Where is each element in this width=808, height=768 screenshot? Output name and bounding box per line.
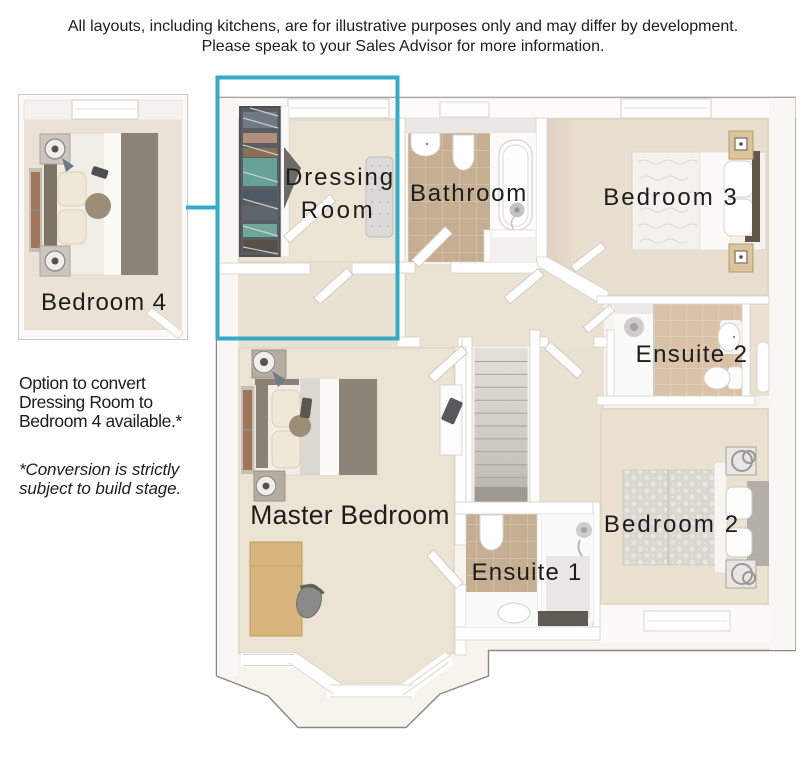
svg-text:Ensuite 2: Ensuite 2 xyxy=(636,341,749,368)
svg-text:Bedroom 4 available.*: Bedroom 4 available.* xyxy=(19,411,182,431)
svg-text:Dressing Room to: Dressing Room to xyxy=(19,392,153,412)
svg-text:All layouts, including kitchen: All layouts, including kitchens, are for… xyxy=(68,18,738,35)
svg-text:Master Bedroom: Master Bedroom xyxy=(250,500,449,530)
svg-text:Please speak to your Sales Adv: Please speak to your Sales Advisor for m… xyxy=(202,38,605,55)
svg-text:Dressing: Dressing xyxy=(285,164,395,191)
svg-text:Bedroom 4: Bedroom 4 xyxy=(41,289,167,316)
svg-text:*Conversion is strictly: *Conversion is strictly xyxy=(19,460,181,479)
svg-text:Ensuite 1: Ensuite 1 xyxy=(472,559,583,586)
svg-text:Bathroom: Bathroom xyxy=(410,180,528,207)
svg-text:Option to convert: Option to convert xyxy=(19,373,146,393)
svg-text:subject to build stage.: subject to build stage. xyxy=(19,479,181,498)
svg-text:Room: Room xyxy=(301,197,375,224)
svg-text:Bedroom 2: Bedroom 2 xyxy=(604,511,740,538)
svg-text:Bedroom 3: Bedroom 3 xyxy=(603,184,738,211)
